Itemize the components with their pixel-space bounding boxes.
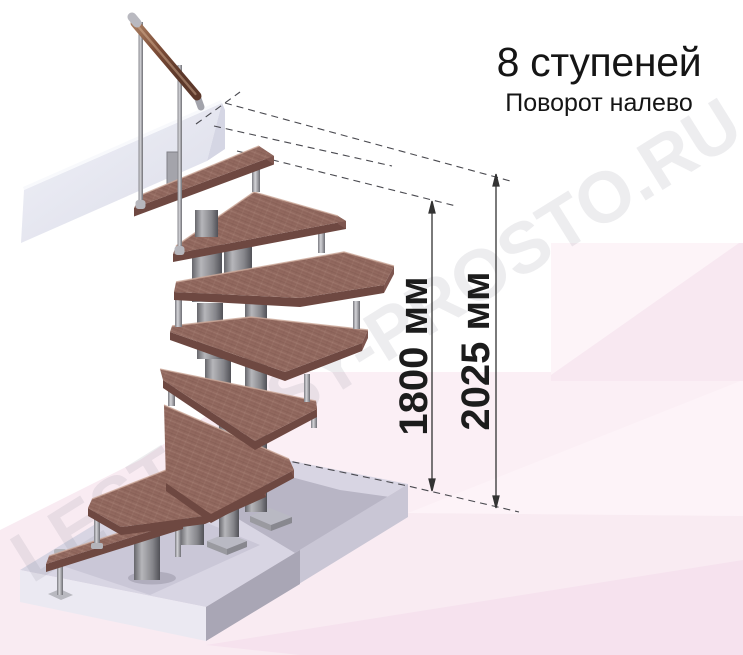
svg-text:1800 мм: 1800 мм — [392, 276, 436, 435]
svg-text:8 ступеней: 8 ступеней — [497, 39, 702, 85]
svg-text:2025 мм: 2025 мм — [454, 271, 498, 430]
svg-text:Поворот налево: Поворот налево — [505, 89, 693, 117]
